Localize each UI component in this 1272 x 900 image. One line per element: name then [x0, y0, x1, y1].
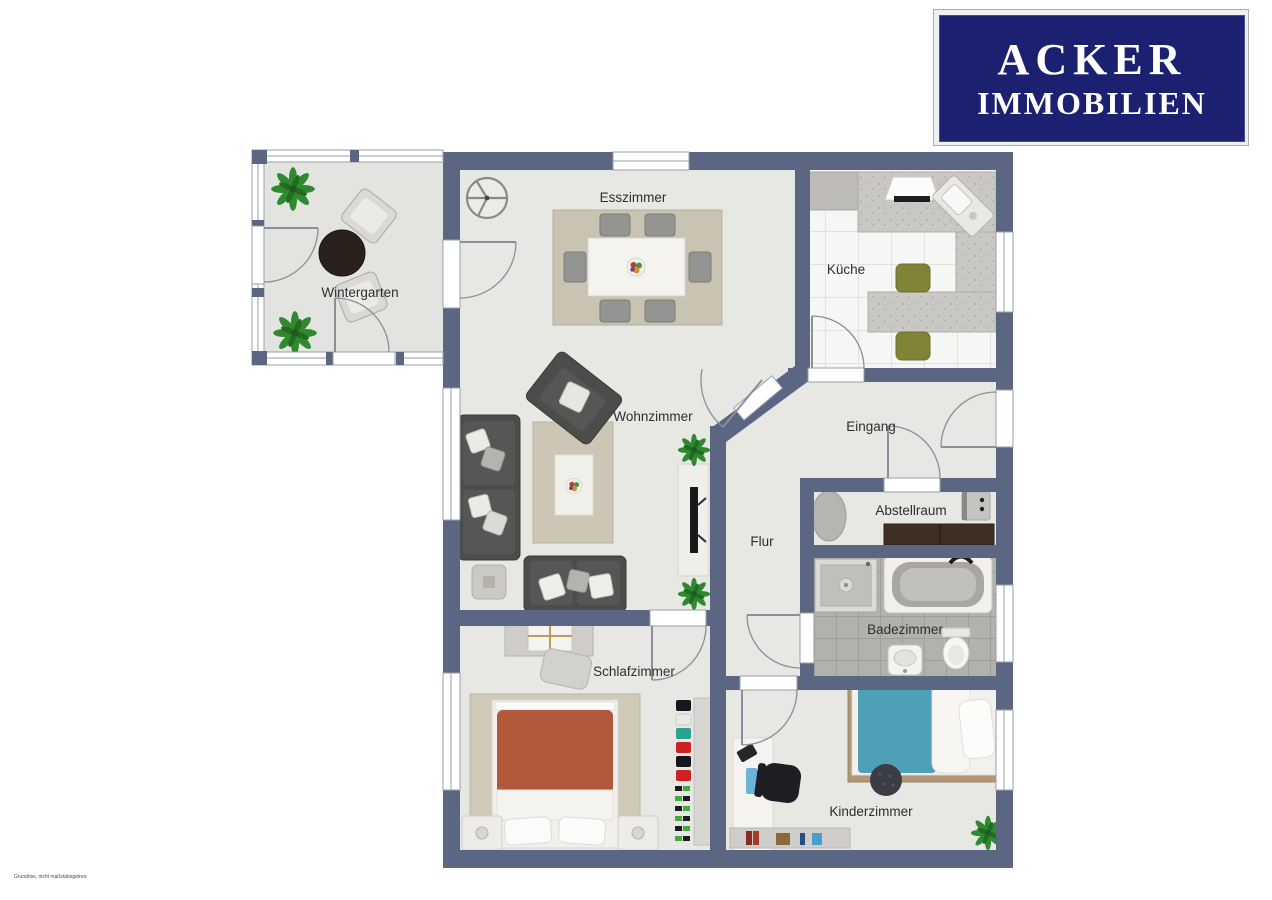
- window: [996, 585, 1013, 662]
- bed-blanket: [497, 710, 613, 794]
- door-wintergarten-west: [252, 226, 264, 284]
- window: [996, 710, 1013, 790]
- plant-icon: [273, 311, 317, 355]
- hood-vent: [894, 196, 930, 202]
- tv-icon: [690, 487, 698, 553]
- kitchen-peninsula: [868, 292, 996, 332]
- storage-basket: [812, 491, 846, 541]
- wall-bottom: [443, 850, 1013, 868]
- room-label-kueche: Küche: [827, 262, 865, 277]
- door-kueche: [808, 368, 864, 382]
- fruit-bowl-icon: [627, 258, 645, 276]
- front-door: [996, 390, 1013, 447]
- pillow: [566, 569, 590, 593]
- scale-disclaimer: Grundriss, nicht maßstabsgetreu: [14, 874, 87, 880]
- room-label-badezimmer: Badezimmer: [867, 622, 943, 637]
- bar-chair: [896, 332, 930, 360]
- logo-line-2: IMMOBILIEN: [977, 87, 1207, 119]
- kids-blanket: [858, 680, 936, 773]
- pillow: [588, 573, 613, 598]
- door-schlafzimmer: [650, 610, 706, 626]
- room-label-kinderzimmer: Kinderzimmer: [829, 804, 913, 819]
- window: [996, 232, 1013, 312]
- room-label-abstellraum: Abstellraum: [875, 503, 946, 518]
- compass-icon: [467, 178, 507, 218]
- door-abstellraum: [884, 478, 940, 492]
- door-kinderzimmer: [740, 676, 797, 690]
- round-table: [319, 230, 365, 276]
- wall-abstellraum-sued: [800, 545, 996, 558]
- wall-kueche-west: [795, 169, 810, 368]
- bed-pillow: [558, 816, 606, 845]
- kids-pillow: [958, 698, 996, 759]
- floor-plan-page: Wintergarten Esszimmer Küche Wohnzimmer …: [0, 0, 1272, 900]
- wall-top: [443, 152, 1013, 170]
- plant-icon: [678, 578, 710, 610]
- door-wintergarten-sued: [333, 352, 395, 365]
- room-label-wohnzimmer: Wohnzimmer: [613, 409, 693, 424]
- room-label-flur: Flur: [750, 534, 774, 549]
- toilet: [942, 628, 970, 669]
- clothes-rail: [675, 700, 691, 841]
- plant-icon: [271, 167, 315, 211]
- window: [613, 152, 689, 170]
- pouf: [870, 764, 902, 796]
- wall-flur-west: [710, 426, 726, 868]
- room-label-schlafzimmer: Schlafzimmer: [593, 664, 675, 679]
- company-logo-panel: ACKER IMMOBILIEN: [939, 15, 1245, 142]
- logo-line-1: ACKER: [998, 38, 1187, 82]
- door-esszimmer: [443, 240, 460, 308]
- bed-sheet-fold: [497, 790, 613, 820]
- room-label-esszimmer: Esszimmer: [600, 190, 667, 205]
- room-label-eingang: Eingang: [846, 419, 896, 434]
- bar-chair: [896, 264, 930, 292]
- plant-icon: [678, 434, 710, 466]
- side-table-deco: [483, 576, 495, 588]
- door-badezimmer: [800, 613, 814, 663]
- room-label-wintergarten: Wintergarten: [321, 285, 398, 300]
- bed-pillow: [504, 816, 552, 845]
- window: [443, 673, 460, 790]
- fruit-bowl-icon: [566, 478, 581, 493]
- company-logo: ACKER IMMOBILIEN: [933, 9, 1249, 146]
- window: [443, 388, 460, 520]
